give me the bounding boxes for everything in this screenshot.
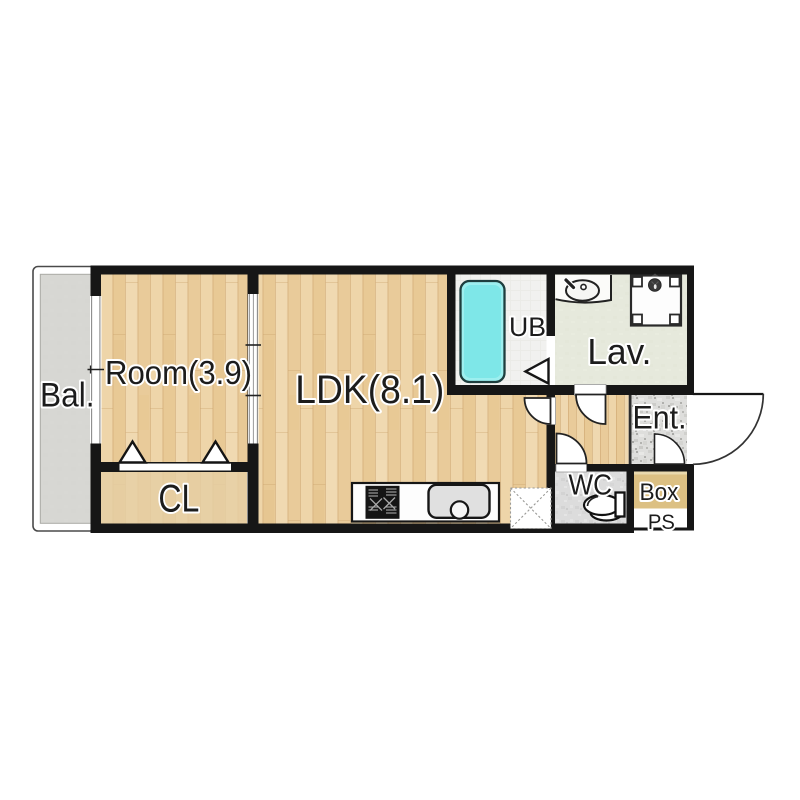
svg-text:UB: UB [509, 312, 546, 342]
svg-text:Ent.: Ent. [633, 399, 687, 435]
svg-text:Box: Box [640, 479, 679, 506]
svg-text:CL: CL [158, 478, 199, 521]
svg-text:Room(3.9): Room(3.9) [105, 355, 252, 392]
svg-text:WC: WC [569, 469, 613, 501]
svg-text:LDK(8.1): LDK(8.1) [295, 368, 444, 412]
svg-text:PS: PS [648, 511, 675, 534]
svg-text:Lav.: Lav. [587, 331, 651, 372]
svg-text:Bal.: Bal. [40, 377, 95, 415]
